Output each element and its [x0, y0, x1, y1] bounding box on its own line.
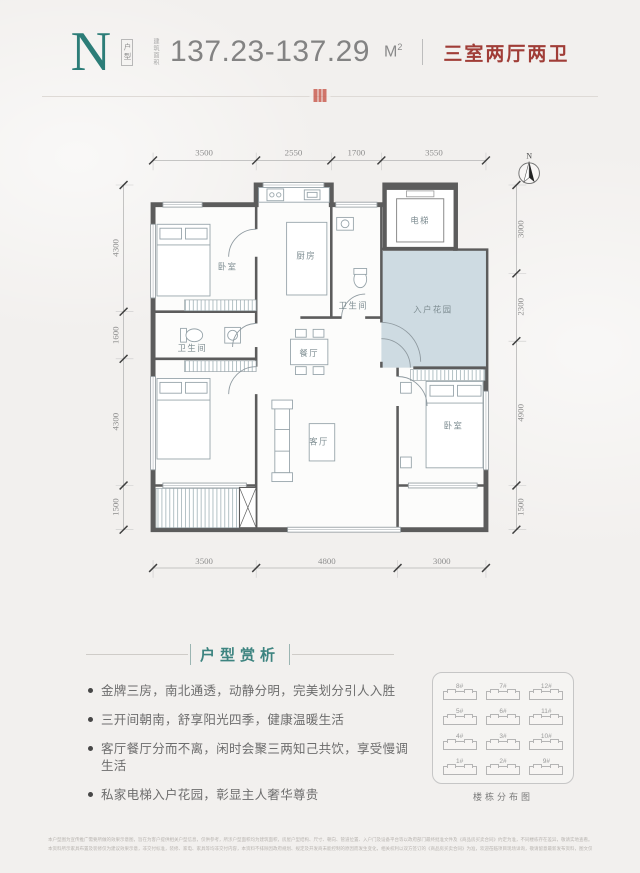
building-shape [486, 691, 520, 700]
room-label-living: 客厅 [309, 436, 329, 446]
dim-top-2: 2550 [285, 148, 303, 158]
disclaimer-line-1: 本户型图为宣传推广需要所做的效果示意图，旨在为客户提供相关户型信息，仅供参考，所… [48, 836, 592, 843]
north-label: N [526, 151, 532, 160]
building-label: 7# [499, 683, 506, 690]
dim-bottom-2: 4800 [318, 556, 336, 566]
selling-point: 客厅餐厅分而不离，闲时会聚三两知己共饮，享受慢调生活 [88, 741, 420, 775]
building-shape [529, 716, 563, 725]
building-label: 4# [456, 733, 463, 740]
dim-left-2: 1600 [111, 326, 121, 344]
header-rule [42, 96, 598, 97]
room-label-entry-garden: 入户花园 [413, 305, 452, 315]
building-shape [529, 741, 563, 750]
room-label-bath-upper: 卫生间 [339, 301, 368, 311]
area-unit: M2 [384, 42, 402, 61]
title-rule-left [86, 654, 188, 655]
building-label: 5# [456, 708, 463, 715]
building-shape [486, 716, 520, 725]
room-label-kitchen: 厨房 [296, 251, 316, 261]
minimap-building: 3# [484, 733, 521, 750]
room-label-bedroom-top-left: 卧室 [218, 261, 238, 271]
dim-right-3: 4900 [515, 403, 525, 421]
bullet-dot-icon [88, 688, 93, 693]
dim-left-4: 1500 [111, 498, 121, 516]
dim-left-1: 4300 [111, 238, 121, 256]
red-seal-mark [314, 89, 327, 102]
area-value: 137.23-137.29 [170, 35, 370, 69]
minimap-building: 10# [528, 733, 565, 750]
duct-shaft [239, 487, 256, 527]
disclaimer-line-2: 本资料所示家具布置及装修仅为建议效果示意，非交付标准，装修、家电、家具等均非交付… [48, 845, 592, 852]
dimension-left: 4300 1600 4300 1500 [111, 181, 134, 534]
building-shape [443, 766, 477, 775]
room-label-bedroom-right: 卧室 [444, 421, 464, 431]
building-shape [443, 741, 477, 750]
building-shape [486, 766, 520, 775]
bullet-dot-icon [88, 792, 93, 797]
minimap-building: 5# [441, 708, 478, 725]
minimap-building: 7# [484, 683, 521, 700]
title-brackets: 户型赏析 [188, 642, 292, 667]
selling-point: 私家电梯入户花园，彰显主人奢华尊贵 [88, 787, 420, 804]
room-layout-text: 三室两厅两卫 [443, 39, 569, 66]
building-label: 1# [456, 758, 463, 765]
floor-plan: 3500 2550 1700 3550 3500 4800 3000 [94, 131, 546, 622]
minimap-building: 2# [484, 758, 521, 775]
dim-left-3: 4300 [111, 412, 121, 430]
building-label: 3# [499, 733, 506, 740]
building-label: 2# [499, 758, 506, 765]
dim-right-4: 1500 [515, 498, 525, 516]
poster-page: N 户型 建筑面积 137.23-137.29 M2 三室两厅两卫 [0, 0, 640, 873]
minimap-building: 1# [441, 758, 478, 775]
analysis-title: 户型赏析 [200, 647, 280, 664]
header: N 户型 建筑面积 137.23-137.29 M2 三室两厅两卫 [0, 0, 640, 78]
building-label: 9# [543, 758, 550, 765]
minimap-building: 12# [528, 683, 565, 700]
minimap-caption: 楼栋分布图 [432, 790, 574, 803]
building-shape [529, 691, 563, 700]
selling-points-list: 金牌三房，南北通透，动静分明，完美划分引人入胜 三开间朝南，舒享阳光四季，健康温… [88, 683, 420, 803]
selling-point-text: 金牌三房，南北通透，动静分明，完美划分引人入胜 [101, 683, 395, 700]
building-shape [443, 691, 477, 700]
minimap-building: 4# [441, 733, 478, 750]
dimension-top: 3500 2550 1700 3550 [149, 148, 490, 171]
area-unit-letter: M [384, 44, 397, 61]
unit-type-letter: N [71, 26, 111, 78]
building-label: 8# [456, 683, 463, 690]
room-label-dining: 餐厅 [299, 348, 319, 358]
dimension-right: 3000 2300 4900 1500 [509, 181, 527, 534]
selling-point-text: 客厅餐厅分而不离，闲时会聚三两知己共饮，享受慢调生活 [101, 741, 420, 775]
bullet-dot-icon [88, 717, 93, 722]
area-unit-sup: 2 [397, 42, 402, 52]
room-label-bath-left: 卫生间 [178, 343, 207, 353]
room-label-elevator: 电梯 [410, 215, 430, 225]
analysis-section: 户型赏析 金牌三房，南北通透，动静分明，完美划分引人入胜 三开间朝南，舒享阳光四… [0, 642, 640, 830]
analysis-title-row: 户型赏析 [86, 642, 394, 667]
minimap-box: 8# 7# 12# 5# 6# 11# 4# 3# 10# 1# 2# 9# [432, 672, 574, 784]
minimap-building: 8# [441, 683, 478, 700]
bullet-dot-icon [88, 746, 93, 751]
building-shape [486, 741, 520, 750]
floor-plan-svg: 3500 2550 1700 3550 3500 4800 3000 [94, 131, 546, 622]
selling-point: 金牌三房，南北通透，动静分明，完美划分引人入胜 [88, 683, 420, 700]
dim-top-3: 1700 [348, 148, 366, 158]
building-minimap: 8# 7# 12# 5# 6# 11# 4# 3# 10# 1# 2# 9# 楼… [432, 672, 574, 803]
disclaimer: 本户型图为宣传推广需要所做的效果示意图，旨在为客户提供相关户型信息，仅供参考，所… [48, 836, 592, 852]
selling-point-text: 私家电梯入户花园，彰显主人奢华尊贵 [101, 787, 319, 804]
area-prefix-label: 建筑面积 [151, 38, 160, 66]
dim-top-1: 3500 [195, 148, 213, 158]
building-shape [529, 766, 563, 775]
dim-bottom-3: 3000 [433, 556, 451, 566]
building-shape [443, 716, 477, 725]
dim-top-4: 3550 [425, 148, 443, 158]
title-rule-right [292, 654, 394, 655]
minimap-building: 6# [484, 708, 521, 725]
minimap-building: 11# [528, 708, 565, 725]
dim-bottom-1: 3500 [195, 556, 213, 566]
selling-point: 三开间朝南，舒享阳光四季，健康温暖生活 [88, 712, 420, 729]
building-label: 6# [499, 708, 506, 715]
unit-type-label: 户型 [121, 39, 133, 66]
selling-point-text: 三开间朝南，舒享阳光四季，健康温暖生活 [101, 712, 344, 729]
minimap-building: 9# [528, 758, 565, 775]
north-arrow-icon: N [519, 151, 540, 183]
dim-right-1: 3000 [515, 220, 525, 238]
dim-right-2: 2300 [515, 297, 525, 315]
header-divider [422, 39, 423, 65]
dimension-bottom: 3500 4800 3000 [149, 556, 490, 578]
